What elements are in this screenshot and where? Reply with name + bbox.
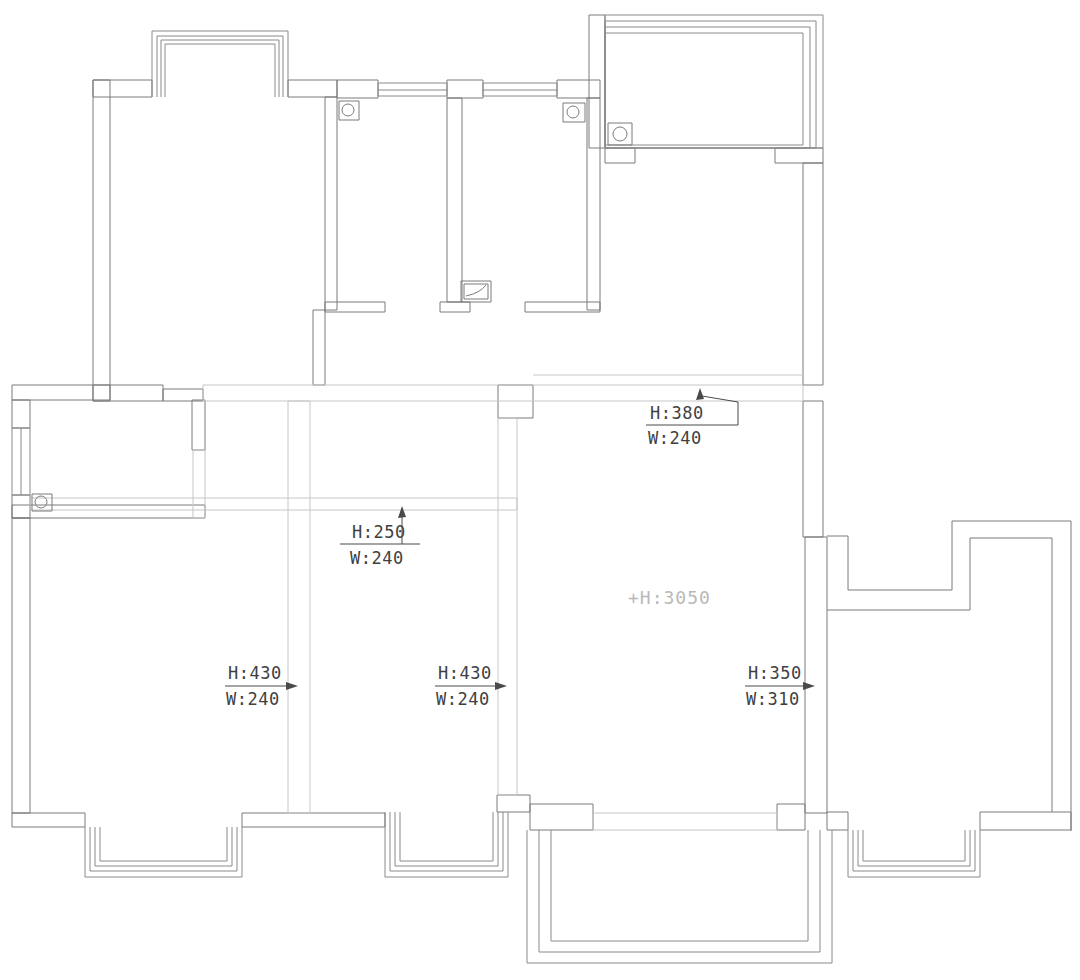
window-bath-right [483,83,557,96]
bay-window-top-left [152,31,288,97]
annotation-opening-left: H:430 W:240 [225,663,298,709]
basin-bath-right-icon [461,281,491,302]
dim-width-label: W:240 [436,689,490,709]
annotation-opening-center: H:430 W:240 [435,663,507,709]
dim-height-label: H:430 [438,663,492,683]
ceiling-height-label: +H:3050 [628,587,711,608]
bay-window-right-wing [848,830,980,877]
fixtures-layer [32,101,632,511]
dim-height-label: H:350 [748,663,802,683]
arrow-right-icon [803,682,815,690]
walls-layer [12,15,1071,831]
annotations-layer: H:380 W:240 H:250 W:240 H:430 W:240 H:43… [225,388,815,709]
exterior-interior-walls [12,15,827,830]
floor-plan-canvas: H:380 W:240 H:250 W:240 H:430 W:240 H:43… [0,0,1080,980]
window-bath-left [378,83,447,96]
balcony-top-right-glazing [605,15,823,148]
arrow-up-icon [398,506,406,518]
floor-drain-balcony-circle [613,127,627,141]
bay-window-bottom-left [85,827,242,877]
dim-height-label: H:430 [228,663,282,683]
annotation-beam-upper: H:380 W:240 [646,388,738,448]
right-wing-walls [827,521,1071,831]
floor-drain-bath-right-circle [567,106,579,118]
balcony-bottom-center-railing [527,830,832,963]
floor-drain-bath-left-circle [342,104,354,116]
dim-width-label: W:240 [226,689,280,709]
bay-window-bottom-center [385,812,508,877]
dim-height-label: H:250 [352,522,406,542]
windows-layer [12,15,980,963]
dim-height-label: H:380 [650,403,704,423]
arrow-up-icon [696,388,704,400]
window-kitchen-left [12,428,30,495]
floor-drain-balcony-icon [608,123,632,145]
dim-width-label: W:240 [350,548,404,568]
floor-plan-svg: H:380 W:240 H:250 W:240 H:430 W:240 H:43… [0,0,1080,980]
arrow-right-icon [495,682,507,690]
dim-width-label: W:240 [648,428,702,448]
dim-width-label: W:310 [746,689,800,709]
arrow-right-icon [286,682,298,690]
annotation-beam-middle: H:250 W:240 [340,506,420,568]
